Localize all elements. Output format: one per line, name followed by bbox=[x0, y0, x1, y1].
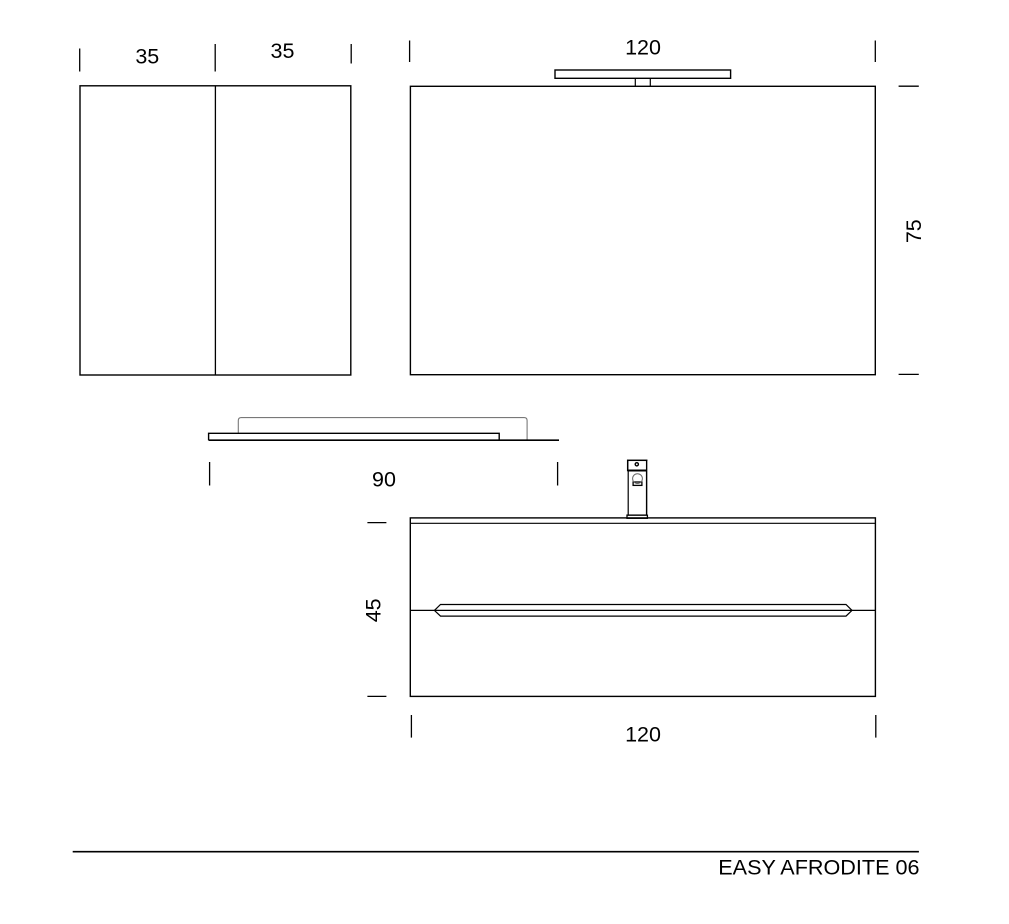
svg-text:35: 35 bbox=[135, 44, 159, 68]
svg-text:EASY AFRODITE 06: EASY AFRODITE 06 bbox=[718, 854, 919, 879]
svg-text:90: 90 bbox=[372, 467, 396, 491]
svg-text:45: 45 bbox=[362, 598, 386, 622]
svg-text:35: 35 bbox=[271, 39, 295, 63]
svg-text:120: 120 bbox=[625, 36, 661, 60]
svg-text:120: 120 bbox=[625, 722, 661, 746]
svg-text:75: 75 bbox=[902, 219, 926, 243]
